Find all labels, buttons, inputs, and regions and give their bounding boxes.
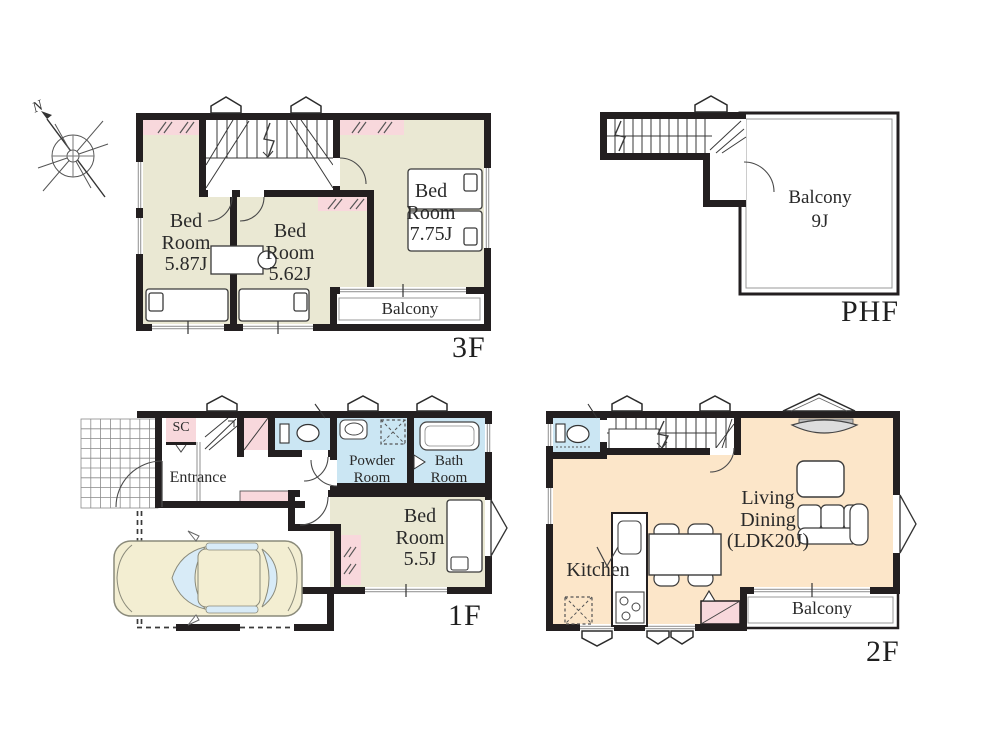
compass-icon: [38, 111, 108, 197]
room-label-balcony-phf: Balcony9J: [773, 186, 867, 234]
room-label-bedroom-55: BedRoom5.5J: [372, 506, 468, 571]
toilet-icon: [297, 425, 319, 442]
bay-window-2f: [900, 495, 916, 553]
room-label-balcony-3f: Balcony: [358, 300, 462, 318]
floor-label-1f: 1F: [448, 599, 482, 633]
bay-window-1f: [491, 500, 507, 556]
room-label-entrance: Entrance: [158, 469, 238, 486]
car-icon: [114, 531, 302, 625]
room-label-bedroom-587: BedRoom5.87J: [146, 211, 226, 276]
floor-label-phf: PHF: [841, 295, 899, 329]
vent-icons-1f: [207, 396, 447, 411]
kitchen-sink-icon: [618, 521, 641, 554]
room-label-bedroom-562: BedRoom5.62J: [248, 221, 332, 286]
dining-table-icon: [649, 534, 721, 575]
room-label-living-dining: LivingDining(LDK20J): [714, 488, 822, 553]
floor-label-3f: 3F: [452, 331, 486, 365]
vent-icons-3f: [211, 97, 321, 113]
vent-icon-phf: [695, 96, 727, 112]
floorplan-graphics: [0, 0, 1000, 750]
room-label-balcony-2f: Balcony: [772, 599, 872, 618]
floor-plan-canvas: N BedRoom5.87J BedRoom5.62J BedRoom7.75J…: [0, 0, 1000, 750]
room-label-bath-room: BathRoom: [412, 453, 486, 488]
room-label-bedroom-775: BedRoom7.75J: [396, 181, 466, 246]
room-label-kitchen: Kitchen: [558, 560, 638, 582]
toilet-icon: [567, 426, 589, 443]
room-label-powder-room: PowderRoom: [335, 453, 409, 488]
room-label-shoe-closet: SC: [166, 420, 196, 435]
floor-label-2f: 2F: [866, 635, 900, 669]
stairs-1f: [205, 418, 237, 450]
